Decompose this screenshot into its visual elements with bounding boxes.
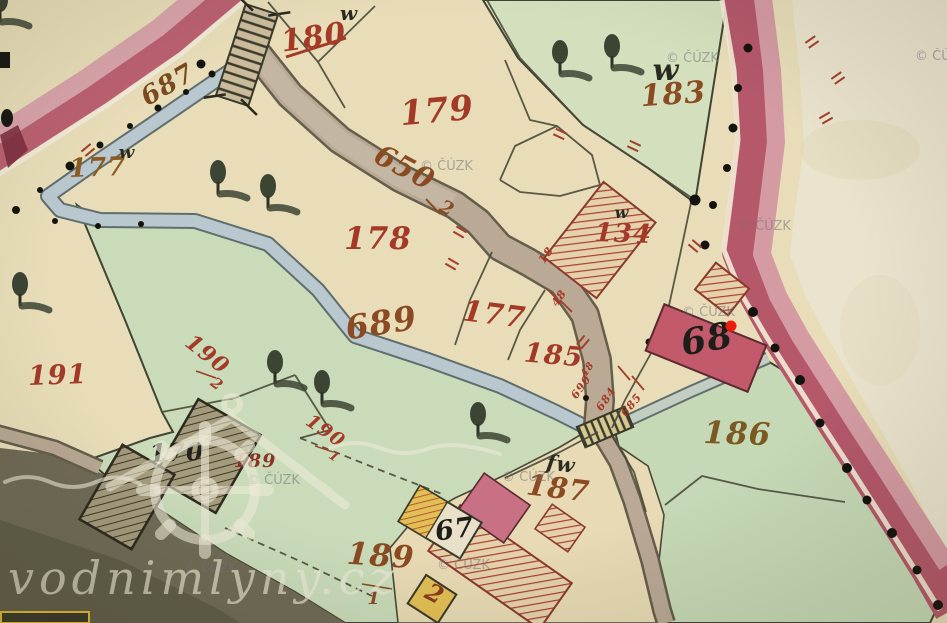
vignette-overlay <box>0 0 947 623</box>
cadastral-map-canvas[interactable]: 687 180 179 183 177 178 650 2 689 177 18… <box>0 0 947 623</box>
cadastral-map-viewport[interactable]: 687 180 179 183 177 178 650 2 689 177 18… <box>0 0 947 623</box>
